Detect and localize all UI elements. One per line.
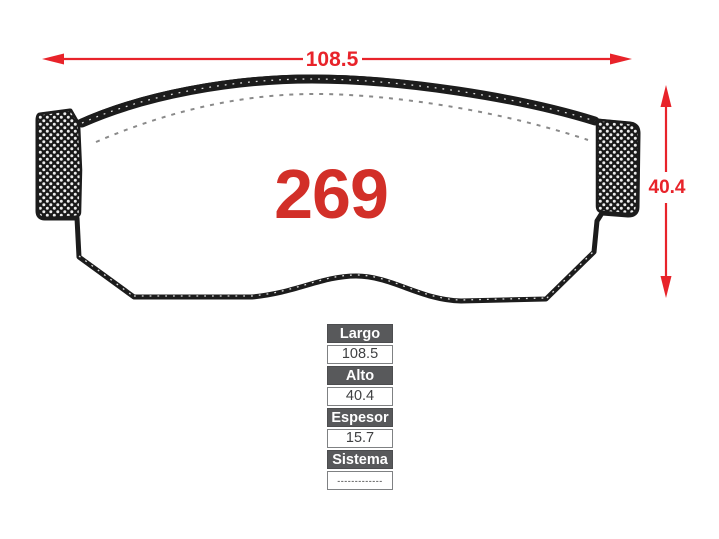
spec-value-espesor: 15.7: [327, 429, 393, 448]
spec-header-alto: Alto: [327, 366, 393, 385]
spec-value-sistema: -------------: [327, 471, 393, 490]
spec-header-largo: Largo: [327, 324, 393, 343]
height-dimension: 40.4: [649, 85, 686, 298]
part-number-label: 269: [274, 155, 388, 233]
spec-value-alto: 40.4: [327, 387, 393, 406]
arrow-down-icon: [661, 276, 672, 298]
diagram-canvas: 108.5 40.4 269 Largo 108.5 Alto 40.4 Esp…: [0, 0, 719, 539]
pad-right-ear: [597, 120, 639, 214]
arrow-right-icon: [610, 54, 632, 65]
arrow-up-icon: [661, 85, 672, 107]
spec-table: Largo 108.5 Alto 40.4 Espesor 15.7 Siste…: [327, 324, 393, 492]
width-dimension-label: 108.5: [306, 48, 359, 71]
width-dimension: 108.5: [42, 48, 632, 71]
spec-header-espesor: Espesor: [327, 408, 393, 427]
spec-header-sistema: Sistema: [327, 450, 393, 469]
arrow-left-icon: [42, 54, 64, 65]
pad-left-ear: [37, 110, 81, 218]
spec-value-largo: 108.5: [327, 345, 393, 364]
height-dimension-label: 40.4: [649, 177, 686, 198]
